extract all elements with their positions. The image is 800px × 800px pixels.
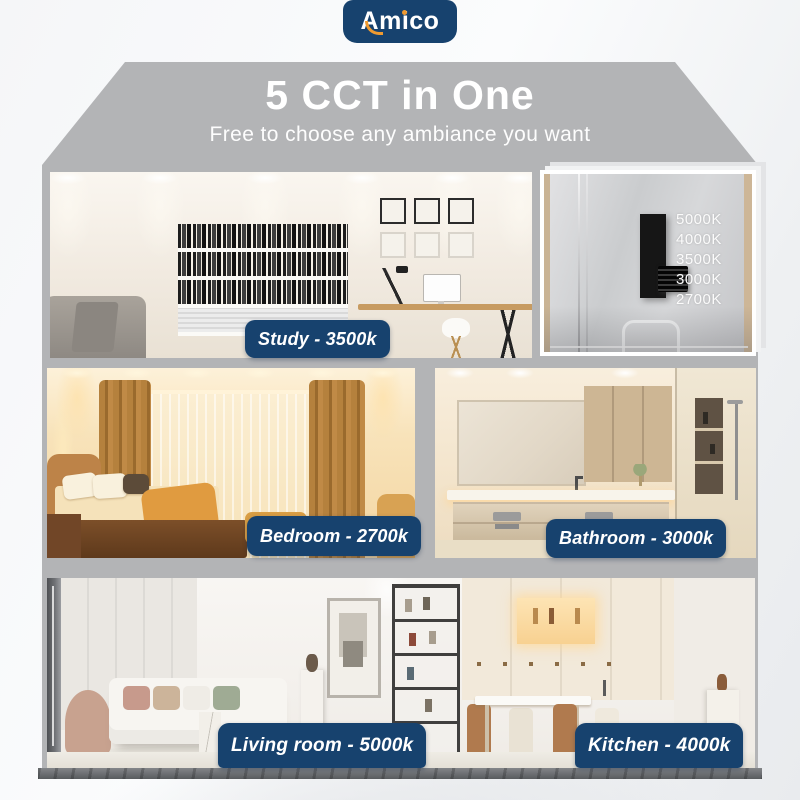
bedroom-label-badge: Bedroom - 2700k bbox=[247, 516, 421, 556]
cabinet-object bbox=[423, 597, 430, 610]
picture-frame bbox=[414, 232, 440, 258]
study-chair bbox=[442, 318, 470, 338]
sofa-pillow bbox=[153, 686, 180, 710]
study-picture-frames bbox=[380, 198, 482, 262]
shower-niche-shelf bbox=[695, 398, 723, 494]
house-foundation-slab bbox=[38, 768, 762, 779]
bedroom-side-table bbox=[47, 514, 81, 558]
toiletry-bottle bbox=[710, 444, 715, 454]
wall-art-print-detail bbox=[343, 641, 363, 667]
cct-switch-plate: 5000K 4000K 3500K 3000K 2700K bbox=[544, 174, 752, 352]
vanity-counter bbox=[447, 490, 675, 500]
headline-title: 5 CCT in One bbox=[42, 72, 758, 119]
cabinet-object bbox=[409, 633, 416, 646]
bathroom-plant bbox=[633, 464, 647, 490]
cabinet-object bbox=[405, 599, 412, 612]
cct-option: 4000K bbox=[676, 230, 746, 250]
picture-frame bbox=[380, 232, 406, 258]
dining-chair bbox=[553, 704, 577, 756]
kitchen-label-badge: Kitchen - 4000k bbox=[575, 723, 743, 768]
study-trestle-legs bbox=[486, 310, 530, 358]
towel-stack bbox=[493, 512, 521, 521]
cabinet-object bbox=[425, 699, 432, 712]
picture-frame bbox=[380, 198, 406, 224]
picture-frame bbox=[448, 198, 474, 224]
bathroom-label-badge: Bathroom - 3000k bbox=[546, 519, 726, 558]
niche-bottle bbox=[575, 608, 580, 624]
toiletry-bottle bbox=[703, 412, 708, 424]
cct-option: 5000K bbox=[676, 210, 746, 230]
niche-bottle bbox=[549, 608, 554, 624]
cct-option: 3500K bbox=[676, 250, 746, 270]
pedestal-vase bbox=[306, 654, 318, 672]
living-armchair bbox=[65, 690, 111, 756]
bathroom-mirror-cabinet bbox=[457, 400, 586, 486]
sofa-pillow bbox=[123, 686, 150, 710]
shower-rail bbox=[735, 404, 738, 500]
product-poster: Amico 5 CCT in One Free to choose any am… bbox=[0, 0, 800, 800]
cct-options-list: 5000K 4000K 3500K 3000K 2700K bbox=[676, 210, 746, 310]
kitchen-faucet bbox=[603, 680, 606, 696]
cct-option: 3000K bbox=[676, 270, 746, 290]
cct-switch-inset: 5000K 4000K 3500K 3000K 2700K bbox=[540, 170, 756, 356]
window-edge bbox=[47, 578, 61, 768]
plate-shading bbox=[544, 306, 752, 352]
decor-figurine bbox=[717, 674, 727, 690]
brand-logo: Amico bbox=[343, 0, 457, 43]
cabinet-object bbox=[429, 631, 436, 644]
sofa-pillow bbox=[213, 686, 240, 710]
picture-frame bbox=[414, 198, 440, 224]
picture-frame bbox=[448, 232, 474, 258]
bathroom-upper-cabinet bbox=[584, 386, 672, 482]
bookshelf-row bbox=[178, 280, 348, 308]
headline-subtitle: Free to choose any ambiance you want bbox=[42, 123, 758, 147]
sofa-pillow bbox=[183, 686, 210, 710]
table-leg bbox=[485, 705, 489, 753]
study-label-badge: Study - 3500k bbox=[245, 320, 390, 358]
living-room-label-badge: Living room - 5000k bbox=[218, 723, 426, 768]
study-desk-lamp bbox=[380, 268, 406, 306]
kitchen-lit-niche bbox=[517, 598, 595, 644]
bathroom-faucet bbox=[575, 476, 578, 490]
logo-accent-dot-icon bbox=[402, 10, 407, 15]
study-sofa-blanket bbox=[71, 302, 118, 352]
cabinet-object bbox=[407, 667, 414, 680]
kitchen-rail-hooks bbox=[477, 662, 627, 666]
wall-art-frame bbox=[327, 598, 381, 698]
study-computer bbox=[423, 274, 461, 302]
niche-bottle bbox=[533, 608, 538, 624]
bookshelf-row bbox=[178, 224, 348, 252]
bookshelf-row bbox=[178, 252, 348, 280]
